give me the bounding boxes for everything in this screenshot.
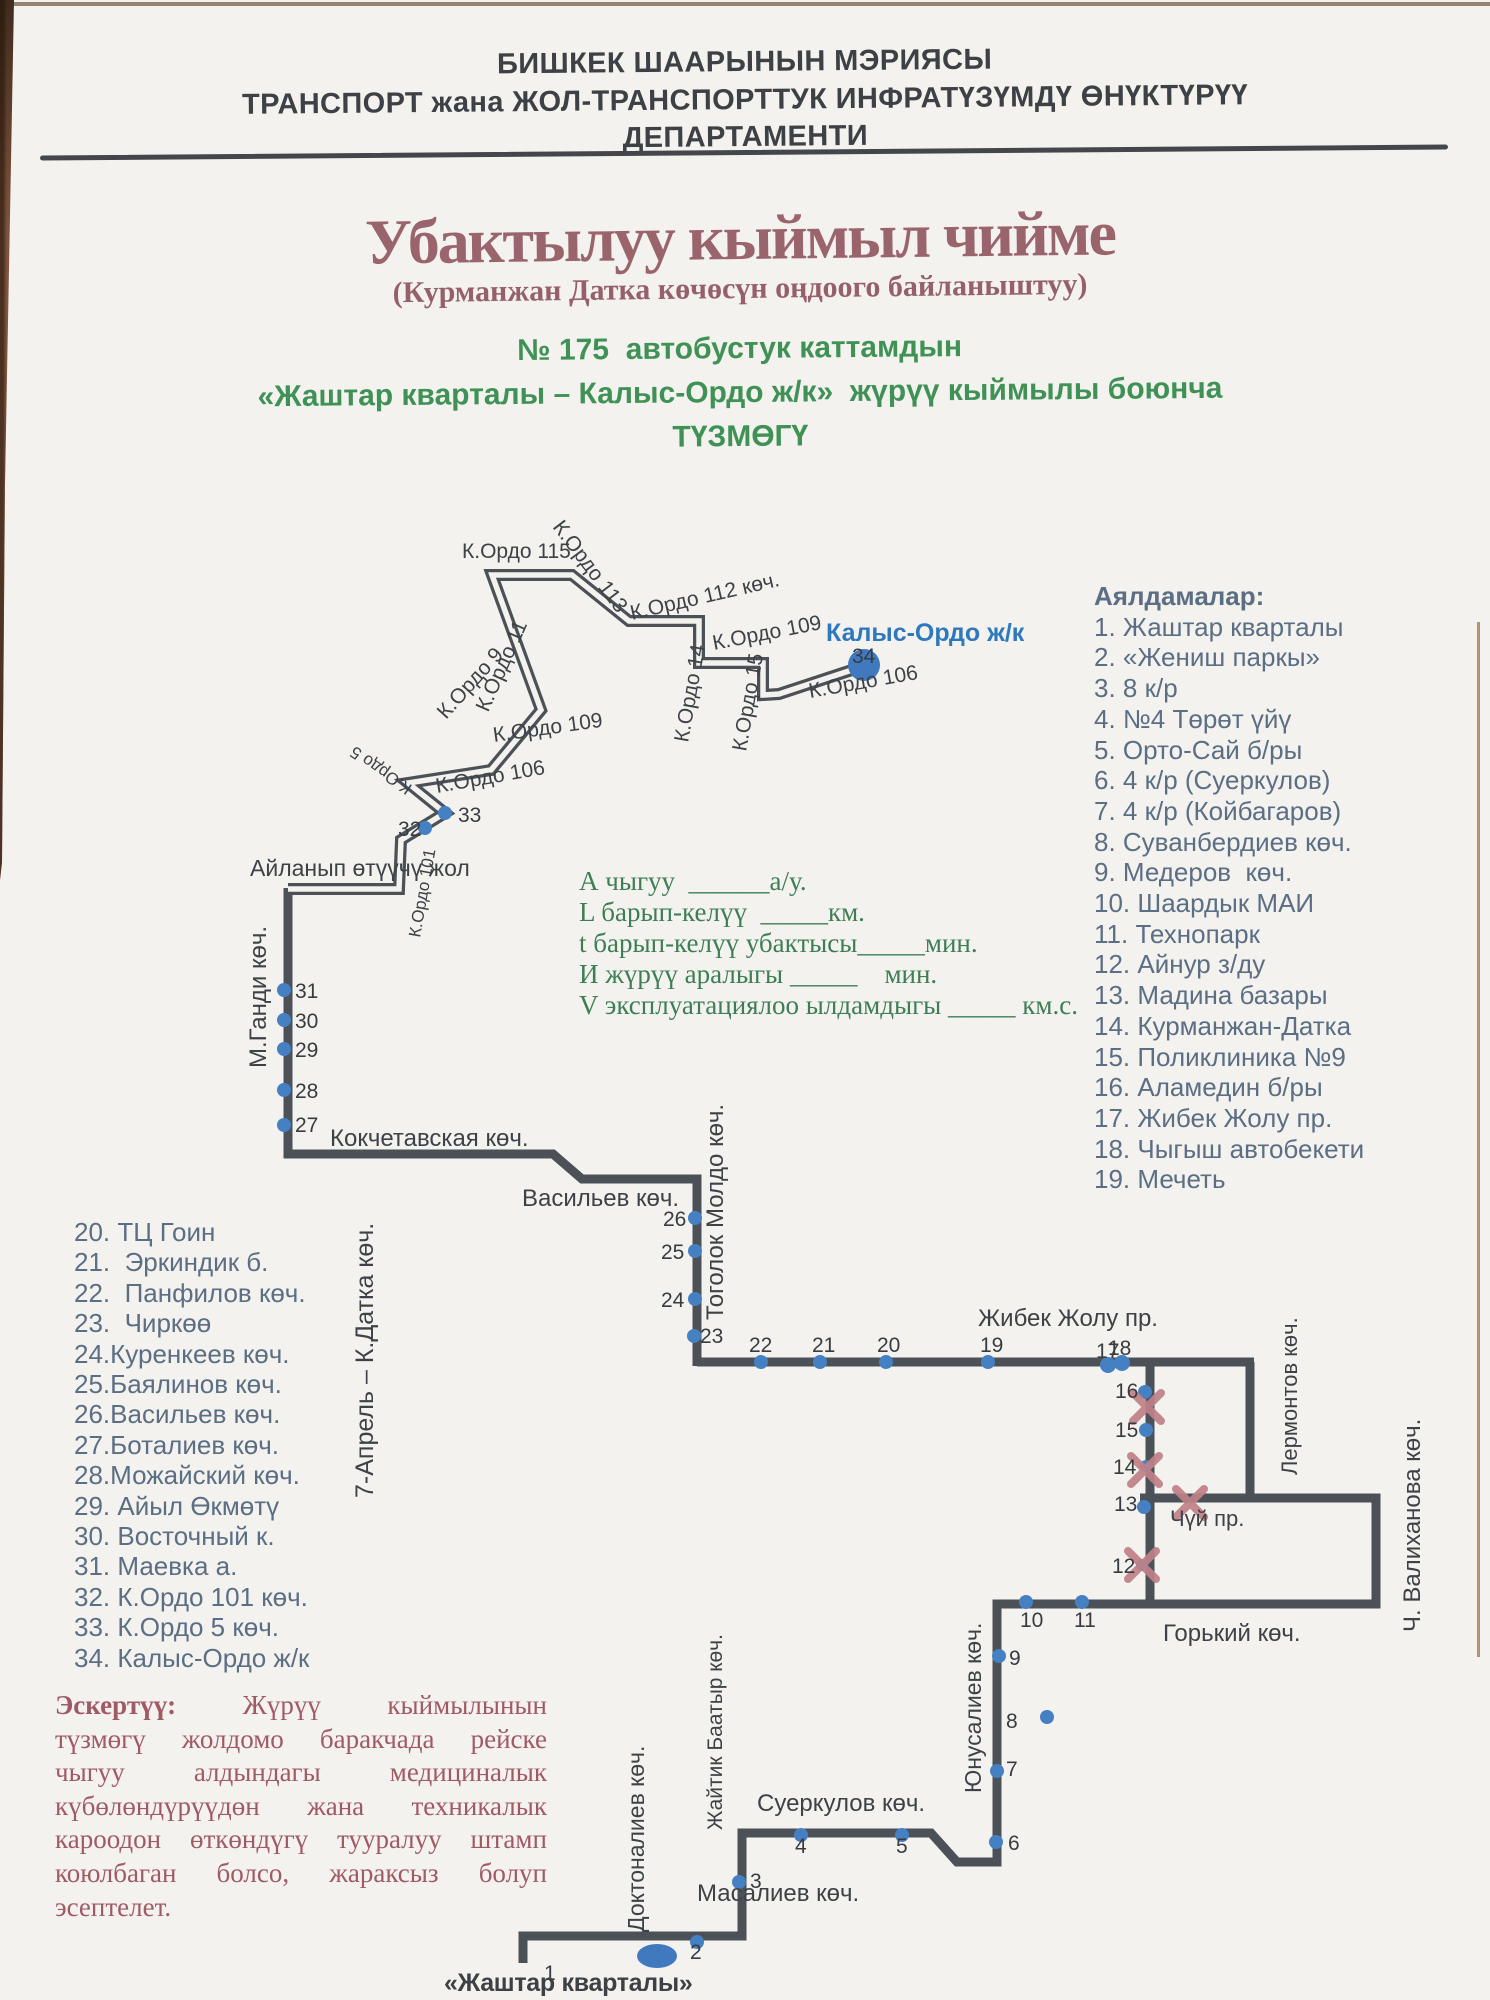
svg-text:25: 25 — [661, 1241, 684, 1264]
svg-text:27: 27 — [295, 1114, 318, 1137]
svg-text:24: 24 — [661, 1289, 685, 1312]
svg-text:10: 10 — [1020, 1609, 1043, 1632]
svg-text:Суеркулов көч.: Суеркулов көч. — [757, 1790, 925, 1817]
svg-text:9: 9 — [1009, 1647, 1021, 1670]
svg-text:28: 28 — [295, 1080, 318, 1103]
svg-text:23: 23 — [700, 1325, 723, 1348]
svg-text:Ч. Валиханова көч.: Ч. Валиханова көч. — [1399, 1419, 1426, 1632]
svg-text:Юнусалиев көч.: Юнусалиев көч. — [960, 1623, 986, 1793]
svg-text:К.Ордо 109: К.Ордо 109 — [491, 709, 604, 747]
svg-text:31: 31 — [295, 980, 318, 1003]
svg-text:34: 34 — [852, 645, 876, 668]
svg-text:Кокчетавская көч.: Кокчетавская көч. — [330, 1125, 529, 1152]
svg-text:22: 22 — [749, 1334, 772, 1357]
svg-text:33: 33 — [458, 804, 481, 827]
svg-text:К.Ордо 5: К.Ордо 5 — [347, 742, 416, 798]
svg-text:М.Ганди көч.: М.Ганди көч. — [245, 926, 272, 1068]
svg-text:К.Ордо 109: К.Ордо 109 — [711, 611, 824, 655]
svg-text:Тоголок Молдо көч.: Тоголок Молдо көч. — [702, 1104, 729, 1320]
svg-text:К.Ордо 113: К.Ордо 113 — [548, 516, 632, 617]
svg-text:Горький көч.: Горький көч. — [1163, 1620, 1301, 1647]
svg-text:18: 18 — [1108, 1337, 1131, 1360]
svg-text:26: 26 — [663, 1208, 686, 1231]
svg-text:29: 29 — [295, 1039, 318, 1062]
svg-text:5: 5 — [896, 1835, 908, 1858]
svg-text:12: 12 — [1112, 1555, 1135, 1578]
svg-text:8: 8 — [1006, 1710, 1018, 1733]
svg-text:К.Ордо 14: К.Ордо 14 — [670, 642, 710, 744]
svg-text:Калыс-Ордо ж/к: Калыс-Ордо ж/к — [826, 619, 1025, 647]
svg-text:19: 19 — [980, 1334, 1003, 1357]
svg-text:3: 3 — [750, 1870, 762, 1893]
svg-text:Айланып өтүүчү жол: Айланып өтүүчү жол — [250, 855, 470, 881]
svg-text:6: 6 — [1008, 1832, 1020, 1855]
svg-text:Васильев көч.: Васильев көч. — [522, 1185, 679, 1212]
svg-text:К.Ордо 115: К.Ордо 115 — [462, 540, 571, 563]
svg-text:20: 20 — [877, 1334, 900, 1357]
svg-text:32: 32 — [398, 818, 421, 841]
svg-text:15: 15 — [1115, 1419, 1138, 1442]
svg-text:11: 11 — [1074, 1609, 1096, 1632]
svg-text:Чүй пр.: Чүй пр. — [1170, 1506, 1244, 1531]
svg-text:2: 2 — [690, 1941, 702, 1964]
svg-text:7: 7 — [1006, 1758, 1018, 1781]
svg-text:21: 21 — [812, 1334, 835, 1357]
svg-text:14: 14 — [1113, 1456, 1137, 1479]
svg-text:Масалиев көч.: Масалиев көч. — [697, 1880, 859, 1907]
svg-text:Лермонтов көч.: Лермонтов көч. — [1277, 1317, 1302, 1475]
svg-text:30: 30 — [295, 1010, 318, 1033]
svg-text:16: 16 — [1115, 1380, 1138, 1403]
svg-text:Жайтик Баатыр көч.: Жайтик Баатыр көч. — [704, 1634, 727, 1830]
svg-text:13: 13 — [1114, 1493, 1137, 1516]
svg-text:Доктоналиев көч.: Доктоналиев көч. — [623, 1746, 649, 1932]
svg-text:4: 4 — [795, 1835, 807, 1858]
svg-text:Жибек Жолу пр.: Жибек Жолу пр. — [978, 1305, 1158, 1332]
